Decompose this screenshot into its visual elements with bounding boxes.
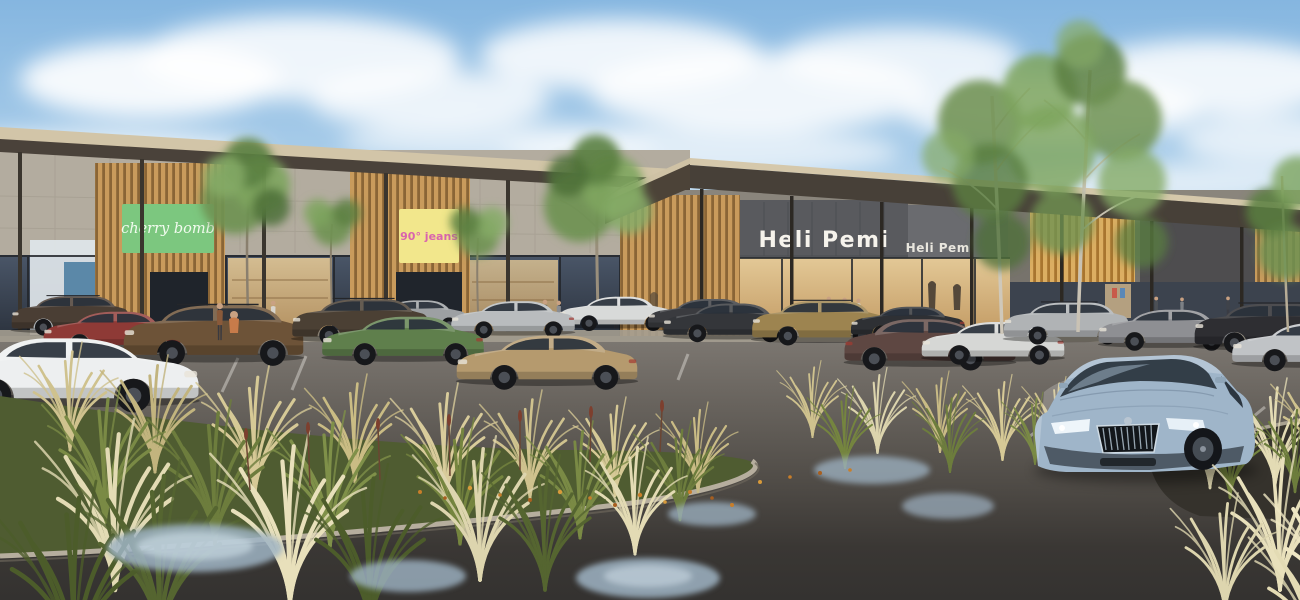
sign-90-jeans: 90° jeans: [399, 209, 459, 263]
sign-heli-pemi-secondary: Heli Pemi: [906, 241, 975, 255]
sign-heli-pemi-primary: Heli Pemi: [758, 228, 889, 253]
side-mirror: [1059, 383, 1068, 388]
sign-90-jeans-label: 90° jeans: [400, 230, 458, 243]
side-mirror: [1215, 377, 1226, 383]
hood-badge: [1124, 417, 1132, 425]
sign-cherry-bomb-label: cherry bomb: [121, 221, 215, 237]
sign-cherry-bomb: cherry bomb: [121, 204, 215, 253]
retail-park-rendering: cherry bomb 90° jeans Heli Pemi Heli Pem…: [0, 0, 1300, 600]
